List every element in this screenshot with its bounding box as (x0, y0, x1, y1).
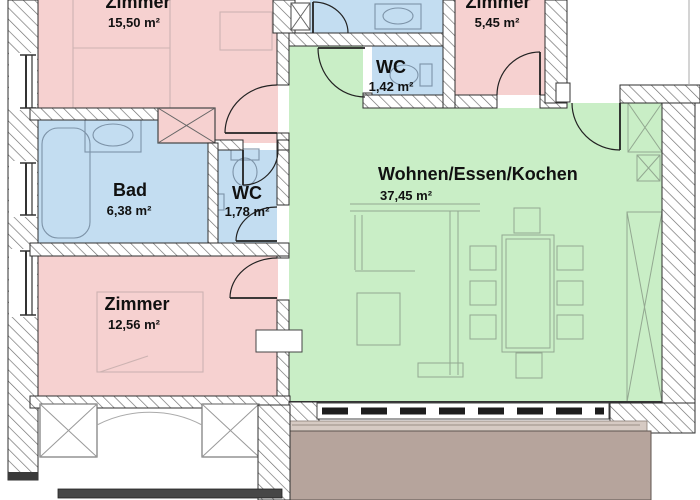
wall-z545-left (443, 0, 455, 108)
wall-bad-bottom (30, 243, 289, 256)
wall-balcony-terrace (258, 405, 290, 500)
wall-left-cap (8, 472, 38, 480)
wall-right (662, 103, 695, 405)
balcony-curve (97, 412, 202, 425)
bottom-zone (40, 402, 662, 500)
label-wohnen: Wohnen/Essen/Kochen (378, 164, 578, 184)
wall-hall-1 (277, 33, 289, 85)
window-left-2 (9, 161, 37, 217)
room-living-1 (363, 108, 455, 402)
area-zimmer-15-50: 15,50 m² (108, 15, 161, 30)
terrace-threshold (289, 421, 647, 431)
balcony-window-1 (40, 404, 97, 457)
balcony-window-2 (202, 404, 259, 457)
window-left-3 (9, 249, 37, 317)
floor-plan: Zimmer 15,50 m² Zimmer 5,45 m² WC 1,42 m… (0, 0, 700, 500)
label-wc-1-42: WC (376, 57, 406, 77)
wall-bad-step-l (215, 140, 243, 150)
room-living-3 (567, 103, 662, 402)
wall-bad-wc (208, 143, 218, 250)
shaft-bad (158, 108, 215, 143)
sliding-door (317, 403, 609, 419)
entrance-post (556, 83, 570, 102)
window-left-1 (9, 53, 37, 110)
area-wohnen: 37,45 m² (380, 188, 433, 203)
area-wc-1-78: 1,78 m² (225, 204, 270, 219)
room-top-bath-cut (310, 0, 443, 33)
area-zimmer-5-45: 5,45 m² (475, 15, 520, 30)
label-wc-1-78: WC (232, 183, 262, 203)
floor-plan-drawing: Zimmer 15,50 m² Zimmer 5,45 m² WC 1,42 m… (0, 0, 700, 500)
area-wc-1-42: 1,42 m² (369, 79, 414, 94)
room-bad-ext (158, 143, 208, 243)
wall-niche (256, 330, 302, 352)
wall-bad-step-r (278, 140, 289, 150)
room-areas (38, 0, 662, 402)
terrace (289, 431, 651, 500)
wall-bad-top (30, 108, 158, 120)
label-zimmer-15-50: Zimmer (105, 0, 170, 12)
wall-z545-bottom-l (455, 95, 497, 108)
label-zimmer-12-56: Zimmer (104, 294, 169, 314)
wall-wc142-bottom (363, 95, 443, 108)
wall-top-right (620, 85, 700, 103)
area-zimmer-12-56: 12,56 m² (108, 317, 161, 332)
label-zimmer-5-45: Zimmer (465, 0, 530, 12)
balcony-rail (58, 489, 282, 498)
label-bad: Bad (113, 180, 147, 200)
wall-top-room-bottom (289, 33, 455, 46)
area-bad: 6,38 m² (107, 203, 152, 218)
